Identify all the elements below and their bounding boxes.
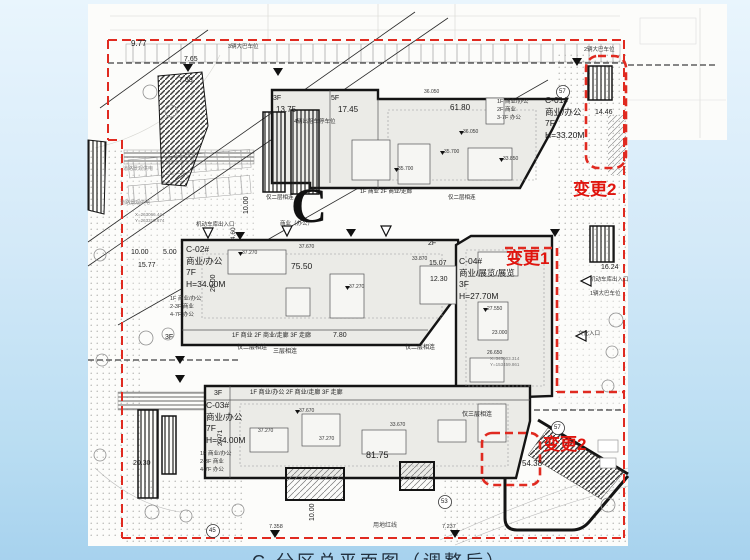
circle-number: 57 — [554, 425, 561, 431]
dim-label: 12.30 — [430, 276, 448, 283]
elevation-label: 26.650 — [487, 351, 502, 356]
elevation-label: 37.270 — [258, 429, 273, 434]
note-label: 道路景观供电 — [120, 201, 150, 206]
elevation-label: 37.270 — [349, 285, 364, 290]
dim-label: 13.75 — [276, 106, 296, 114]
note-label: 仅二层相连 — [266, 196, 294, 202]
elevation-label: 33.850 — [503, 157, 518, 162]
usage-label: 2-3F 商业 — [200, 460, 224, 466]
coordinate-label: Y=153459.861 — [490, 363, 519, 368]
dim-label: 10.00 — [243, 196, 250, 214]
usage-label: 4-7F 办公 — [200, 468, 224, 474]
dim-label: 16.24 — [601, 264, 619, 271]
note-label: 1辆大巴车位 — [590, 292, 621, 298]
circle-number: 45 — [209, 528, 216, 534]
dim-label: 5.00 — [163, 249, 177, 256]
elevation-label: 23.000 — [492, 331, 507, 336]
dim-label: 75.50 — [291, 262, 312, 271]
note-label: 仅三层相连 — [462, 412, 492, 418]
drawing-caption: C 分区总平面图（调整后） — [252, 548, 507, 560]
site-plan-page: 9.777.657.6513.7517.4561.8014.4610.005.0… — [0, 0, 750, 560]
dim-label: 17.45 — [338, 106, 358, 114]
usage-label: 1F 商业/办公 — [170, 297, 201, 303]
dim-label: 7.65 — [179, 77, 193, 84]
building-info-label: 商业/办公 — [186, 257, 222, 266]
dim-label: 7.237 — [442, 525, 456, 531]
dim-label: 7.65 — [184, 56, 198, 63]
usage-label: 1F 商业 2F 商业/走廊 — [360, 190, 412, 196]
dim-label: 7.80 — [333, 332, 347, 339]
building-info-label: C-02# — [186, 245, 209, 254]
usage-label: 1F 商业 2F 商业/走廊 3F 走廊 — [232, 333, 311, 339]
dim-label: 61.80 — [450, 104, 470, 112]
note-label: 道路景观供电 — [123, 167, 153, 172]
elevation-label: 35.700 — [444, 150, 459, 155]
building-info-label: 7F — [186, 268, 196, 277]
floor-label: 5F — [331, 95, 339, 102]
elevation-label: 33.870 — [412, 257, 427, 262]
dim-label: 54.38 — [522, 460, 542, 468]
elevation-label: 37.270 — [242, 251, 257, 256]
change-marker-label: 变更2 — [573, 181, 616, 198]
note-label: 三层相连 — [273, 349, 297, 355]
note-label: 用地红线 — [373, 523, 397, 529]
note-label: 仅二层相连 — [237, 345, 267, 351]
building-info-label: C-04# — [459, 257, 482, 266]
building-info-label: H=34.00M — [186, 280, 225, 289]
circle-number: 53 — [441, 499, 448, 505]
coordinate-label: X=263066.444 — [135, 213, 164, 218]
note-label: 仅二层相连 — [405, 345, 435, 351]
elevation-label: 37.270 — [319, 437, 334, 442]
elevation-label: 36.050 — [463, 130, 478, 135]
building-info-label: C-03# — [206, 401, 229, 410]
usage-label: 1F 商业/办公 — [497, 100, 528, 106]
coordinate-label: X=343003.314 — [490, 357, 519, 362]
building-info-label: C-01# — [545, 96, 568, 105]
building-info-label: 商业/展览/展览 — [459, 269, 515, 278]
building-info-label: H=27.70M — [459, 292, 498, 301]
floor-label: 3F — [273, 95, 281, 102]
building-info-label: 商业/办公 — [206, 413, 242, 422]
note-label: 文化入口 — [578, 332, 600, 338]
usage-label: 2-3F 商业 — [170, 305, 194, 311]
usage-label: 1F 商业/办公 — [200, 452, 231, 458]
note-label: 机动车库出入口 — [196, 223, 235, 229]
building-info-label: H=33.20M — [545, 131, 584, 140]
elevation-label: 33.670 — [390, 423, 405, 428]
dim-label: 20.30 — [133, 460, 151, 467]
dim-label: 10.00 — [131, 249, 149, 256]
usage-label: 2F 商业 — [497, 108, 516, 114]
elevation-label: 35.700 — [398, 167, 413, 172]
floor-label: 3F — [214, 390, 222, 397]
change-marker-label: 变更2 — [543, 436, 586, 453]
building-info-label: 商业/办公 — [545, 108, 581, 117]
dim-label: 15.07 — [429, 260, 447, 267]
dim-label: 15.77 — [138, 262, 156, 269]
building-info-label: H=34.00M — [206, 436, 245, 445]
change-marker-label: 变更1 — [506, 250, 549, 267]
dim-label: 7.358 — [269, 525, 283, 531]
zone-letter: C — [291, 180, 327, 230]
elevation-label: 37.670 — [299, 245, 314, 250]
note-label: 仅二层相连 — [448, 196, 476, 202]
elevation-label: 27.550 — [487, 307, 502, 312]
dim-label: 9.77 — [131, 40, 147, 48]
note-label: 机动车库出入口 — [590, 278, 629, 284]
coordinate-label: Y=263310.674 — [135, 219, 164, 224]
floor-label: 3F — [165, 334, 173, 341]
dim-label: 4.60 — [231, 227, 238, 240]
elevation-label: 36.050 — [424, 90, 439, 95]
note-label: 4辆出租车停车位 — [294, 120, 336, 126]
building-info-label: 3F — [459, 280, 469, 289]
elevation-label: 37.670 — [299, 409, 314, 414]
usage-label: 1F 商业/办公 2F 商业/走廊 3F 走廊 — [250, 390, 343, 396]
floor-label: 2F — [428, 240, 436, 247]
note-label: 3辆大巴车位 — [228, 45, 259, 51]
label-layer: 9.777.657.6513.7517.4561.8014.4610.005.0… — [0, 0, 750, 560]
dim-label: 81.75 — [366, 451, 389, 460]
usage-label: 4-7F 办公 — [170, 313, 194, 319]
building-info-label: 7F — [545, 119, 555, 128]
note-label: 2辆大巴车位 — [584, 48, 615, 54]
building-info-label: 7F — [206, 424, 216, 433]
dim-label: 14.46 — [595, 109, 613, 116]
dim-label: 10.00 — [309, 503, 316, 521]
usage-label: 3-7F 办公 — [497, 116, 521, 122]
